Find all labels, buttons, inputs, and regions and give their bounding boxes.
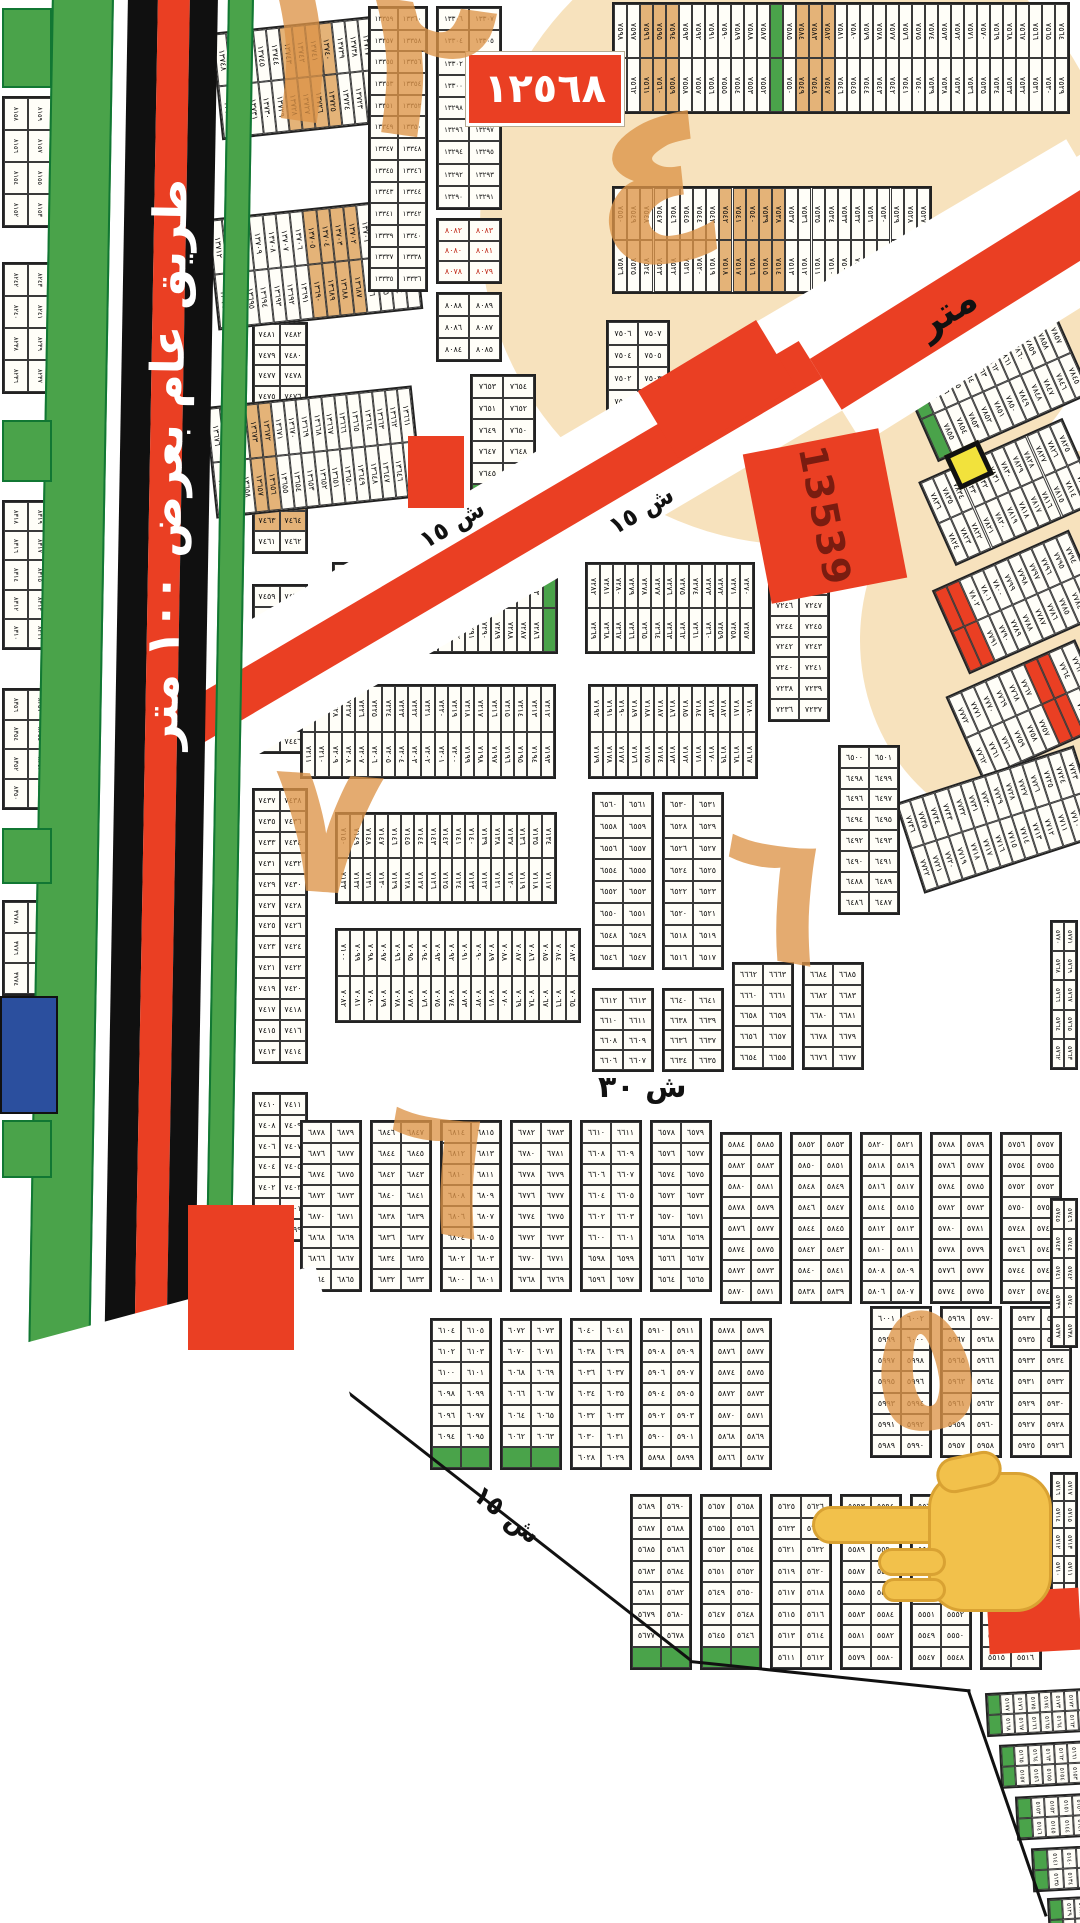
plot-cell: ٧٠٧٧ xyxy=(404,976,417,1022)
plot-cell: ٥٩٣٤ xyxy=(1041,1350,1070,1371)
plot-cell: ٦٦٠٦ xyxy=(594,1050,623,1070)
plot-cell: ٧٥٤٧ xyxy=(654,188,667,240)
plot-cell: ٦٥٥٢ xyxy=(594,881,623,903)
plot-cell: ٨٠٨٢ xyxy=(438,220,469,241)
plot-cell: ٦٥١٦ xyxy=(664,946,693,968)
plot-cell: ٨٣١٦ xyxy=(4,531,28,560)
plot-cell: ٦٦٠٧ xyxy=(611,1164,640,1185)
plot-cell: ٦٥٦٦ xyxy=(652,1248,681,1269)
plot-cell: ٧٥٥٤ xyxy=(731,58,744,112)
plot-cell: ٦٤٩٤ xyxy=(840,809,869,830)
plot-cell: ٥٨١٥ xyxy=(891,1197,920,1218)
plot-block: ٦٦٨٤٦٦٨٥٦٦٨٢٦٦٨٣٦٦٨٠٦٦٨١٦٦٧٨٦٦٧٩٦٦٧٦٦٦٧٧ xyxy=(802,962,864,1070)
plot-block: ٥٨٧٨٥٨٧٩٥٨٧٦٥٨٧٧٥٨٧٤٥٨٧٥٥٨٧٢٥٨٧٣٥٨٧٠٥٨٧١… xyxy=(710,1318,772,1470)
plot-block: ٧١٠٠٧٠٨٢٧٠٩٩٧٠٨١٧٠٩٨٧٠٨٠٧٠٩٧٧٠٧٩٧٠٩٦٧٠٧٨… xyxy=(335,928,581,1023)
plot-cell: ٧١٣٠ xyxy=(375,858,388,902)
plot-cell: ٥١٧٤ xyxy=(1039,1692,1053,1713)
plot-cell: ٧٤٠٦ xyxy=(254,1136,280,1157)
plot-block: ٨٠٨٨٨٠٨٩٨٠٨٦٨٠٨٧٨٠٨٤٨٠٨٥ xyxy=(436,292,502,362)
green-plot xyxy=(2,420,52,482)
plot-cell: ٥٧١٥ xyxy=(1064,1501,1076,1528)
plot-cell: ٧١٤٩ xyxy=(350,814,363,858)
plot-cell: ٦٥٥٨ xyxy=(594,816,623,838)
plot-block: ٥٧٧٠٥٧٧١٥٧٦٨٥٧٦٩٥٧٦٦٥٧٦٧٥٧٦٤٥٧٦٥٥٧٦٢٥٧٦٣ xyxy=(1050,920,1078,1070)
plot-cell: ٧٥٧٧ xyxy=(886,4,899,58)
plot-cell: ٥٦٧٨ xyxy=(661,1625,690,1647)
plot-cell: ٥٩٣٧ xyxy=(1012,1308,1041,1329)
plot-cell: ٧٥١٣ xyxy=(785,240,798,292)
plot-cell: ٦٠٢٨ xyxy=(572,1447,601,1468)
plot-cell: ٨٣٥٦ xyxy=(4,690,28,720)
plot-cell: ٥١٥٦ xyxy=(1029,1765,1043,1786)
plot-cell: ٥١٢٣ xyxy=(1063,1919,1077,1923)
plot-cell: ٧٥٩٤ xyxy=(666,4,679,58)
plot-cell: ٧٢١٤ xyxy=(514,686,527,732)
plot-cell: ٧٠٧١ xyxy=(485,976,498,1022)
plot-cell: ٧٤٢٢ xyxy=(280,957,306,978)
plot-cell: ٧١٨٦ xyxy=(667,686,680,732)
plot-block: ٥١٧٧٥١٦٨٥١٧٦٥١٦٧٥١٧٥٥١٦٦٥١٧٤٥١٦٥٥١٧٣٥١٦٤… xyxy=(985,1687,1080,1737)
plot-cell: ٥٨٧٥ xyxy=(751,1239,780,1260)
plot-cell: ٥٩٧٠ xyxy=(971,1308,1000,1329)
plot-cell: ١٣٣٣٨ xyxy=(398,247,426,269)
plot-cell: ٦٦٧٦ xyxy=(804,1047,833,1068)
plot-cell: ٥١٤١ xyxy=(1047,1849,1062,1870)
plot-cell: ٧٢٤٥ xyxy=(799,616,828,637)
plot-cell: ٧٠٩٣ xyxy=(431,930,444,976)
plot-cell: ٧٤٠٨ xyxy=(254,1115,280,1136)
plot-cell: ٥٨١٨ xyxy=(862,1155,891,1176)
plot-block: ٥٧٤٥٥٧٤٦٥٧٤٣٥٧٤٤٥٧٤١٥٧٤٢٥٧٣٩٥٧٤٠٥٧٣٧٥٧٣٨ xyxy=(1050,1198,1078,1348)
plot-cell: ٧٠٩٨ xyxy=(364,930,377,976)
plot-cell: ٦١٠٥ xyxy=(461,1320,490,1341)
plot-cell: ٦٤٩٠ xyxy=(840,851,869,872)
plot-cell: ٦٦١٣ xyxy=(623,990,652,1010)
red-plot xyxy=(188,1205,294,1350)
plot-cell: ٧٥١٦ xyxy=(746,240,759,292)
plot-cell: ٧١٢٥ xyxy=(440,858,453,902)
plot-cell: ٦٨١٢ xyxy=(442,1143,471,1164)
plot-cell: ٨٣٥٢ xyxy=(4,749,28,779)
plot-cell: ٥٧٥٥ xyxy=(1031,1155,1060,1176)
plot-cell: ٥٩٣٣ xyxy=(1012,1350,1041,1371)
plot-cell: ٧٢٠٧ xyxy=(355,732,368,778)
plot-cell: ١٣٣٤٤ xyxy=(398,182,426,204)
plot-cell: ٧٢١٩ xyxy=(448,686,461,732)
plot-cell: ٧١٧٥ xyxy=(641,732,654,778)
plot-cell: ١٣٣٥٥ xyxy=(370,51,398,73)
plot-cell: ٥٥٨٠ xyxy=(871,1647,900,1669)
plot-cell: ٧٥٣٨ xyxy=(772,188,785,240)
plot-cell: ٥١٥٠ xyxy=(1072,1795,1080,1816)
plot-cell: ٥٩٠٦ xyxy=(642,1362,671,1383)
plot-cell: ٥٧٤٨ xyxy=(1002,1218,1031,1239)
plot-cell: ٧٥٣٧ xyxy=(785,188,798,240)
plot-cell: ٧٠٨٥ xyxy=(539,930,552,976)
plot-cell: ٨٣٥٤ xyxy=(4,720,28,750)
plot-cell: ٦٧٨٣ xyxy=(541,1122,570,1143)
plot-cell: ٦٥٦١ xyxy=(623,794,652,816)
plot-cell: ٥٧٥٢ xyxy=(1002,1176,1031,1197)
plot-cell: ٥٧٥٦ xyxy=(1002,1134,1031,1155)
plot-cell: ٧١١٩ xyxy=(517,858,530,902)
plot-cell: ٧١٢٠ xyxy=(504,858,517,902)
plot-cell: ٥١٦٦ xyxy=(1027,1712,1041,1733)
plot-cell: ٥٨٥١ xyxy=(821,1155,850,1176)
plot-cell: ٦٦٣٤ xyxy=(664,1050,693,1070)
plot-cell: ٣٧٧٨ xyxy=(4,902,28,933)
plot-cell: ٥٨٤٩ xyxy=(821,1176,850,1197)
plot-cell: ٥٦٢٥ xyxy=(772,1496,801,1518)
plot-cell: ٧٥٢٩ xyxy=(891,188,904,240)
plot-cell: ٥٦٩٠ xyxy=(661,1496,690,1518)
plot-cell: ٧٥٤٢ xyxy=(886,58,899,112)
plot-cell: ٥٨٧٠ xyxy=(722,1281,751,1302)
plot-cell: ٧١٣٧ xyxy=(504,814,517,858)
plot-cell: ٦٨٧٥ xyxy=(331,1164,360,1185)
plot-cell: ٦٥٥٧ xyxy=(623,838,652,860)
plot-cell: ٥٨٧٧ xyxy=(751,1218,780,1239)
plot-cell: ٦٨٤٦ xyxy=(372,1122,401,1143)
plot-cell: ٦٤٨٨ xyxy=(840,872,869,893)
plot-cell: ٦٤٩٥ xyxy=(869,809,898,830)
plot-block: ٥١٢٩٥١٢٣٥١٢٨٥١٢٢٥١٢٧٥١٢١٥١٢٦٥١٢٠٥١٢٥٥١١٩ xyxy=(1047,1894,1080,1923)
plot-cell: ٦٥٧٣ xyxy=(681,1185,710,1206)
plot-cell: ٦٨٧٤ xyxy=(302,1164,331,1185)
plot-cell: ٥٨٧٧ xyxy=(741,1341,770,1362)
plot-cell: ٥٧٦٨ xyxy=(1052,951,1064,980)
plot-cell: ٦٧٧٢ xyxy=(512,1227,541,1248)
plot-cell: ٥٧٧٦ xyxy=(932,1260,961,1281)
plot-cell: ١٣٢٩٥ xyxy=(469,141,500,163)
plot-cell: ٧٥٦٩ xyxy=(990,4,1003,58)
plot-cell: ٧٤٣٨ xyxy=(280,790,306,811)
plot-cell: ٧٢٧٥ xyxy=(676,564,689,608)
plot-cell: ٦٥٧٢ xyxy=(652,1185,681,1206)
plot-cell: ٥١٧٧ xyxy=(1000,1694,1014,1715)
plot-cell: ٥٩٦٧ xyxy=(942,1329,971,1350)
plot-cell: ٧٢٦٦ xyxy=(625,608,638,652)
plot-cell: ٧٠٧٨ xyxy=(391,976,404,1022)
plot-cell: ٦٥٧٤ xyxy=(652,1164,681,1185)
plot-cell: ٧٢٦٩ xyxy=(587,608,600,652)
plot-cell: ٦٦٨٢ xyxy=(804,985,833,1006)
plot-cell: ٣٧٧٦ xyxy=(4,933,28,964)
plot-cell xyxy=(461,1447,490,1468)
plot-cell: ٦٠٩٧ xyxy=(461,1405,490,1426)
plot-cell: ١٣٣٥٢ xyxy=(398,95,426,117)
plot-block: ٦٦١٢٦٦١٣٦٦١٠٦٦١١٦٦٠٨٦٦٠٩٦٦٠٦٦٦٠٧ xyxy=(592,988,654,1072)
plot-cell: ٧٠٨٨ xyxy=(498,930,511,976)
plot-cell: ١٣٢٩١ xyxy=(469,186,500,208)
plot-cell: ٧٢٥٧ xyxy=(740,608,753,652)
plot-cell: ٧٢٠٣ xyxy=(408,732,421,778)
plot-cell: ٦٥٧١ xyxy=(681,1206,710,1227)
plot-cell: ٧٠٦٩ xyxy=(512,976,525,1022)
plot-cell: ٧٥٣٥ xyxy=(812,188,825,240)
plot-cell: ٥٦٢١ xyxy=(772,1539,801,1561)
plot-cell: ٥١٦٥ xyxy=(1040,1712,1054,1733)
plot-cell: ٨٠٨٠ xyxy=(438,241,469,262)
plot-cell: ٦٦٧٩ xyxy=(833,1026,862,1047)
plot-cell: ٦٠٣٥ xyxy=(601,1383,630,1404)
plot-cell: ٦٥٥٠ xyxy=(594,903,623,925)
plot-cell: ٦٥٦٧ xyxy=(681,1248,710,1269)
plot-cell: ٥٧١٣ xyxy=(1064,1528,1076,1555)
plot-cell: ٥٧٨١ xyxy=(961,1218,990,1239)
plot-cell: ٥١٥١ xyxy=(1058,1796,1073,1817)
plot-cell: ٦٠٦٤ xyxy=(502,1405,531,1426)
plot-cell: ٧٥٤٨ xyxy=(640,188,653,240)
plot-cell: ٧١١٧ xyxy=(542,858,555,902)
plot-block: ٥٦٥٧٥٦٥٨٥٦٥٥٥٦٥٦٥٦٥٣٥٦٥٤٥٦٥١٥٦٥٢٥٦٤٩٥٦٥٠… xyxy=(700,1494,762,1670)
plot-cell: ٧١٤٣ xyxy=(427,814,440,858)
plot-cell: ٧٢٠٨ xyxy=(342,732,355,778)
plot-cell: ٧٥٤٠ xyxy=(912,58,925,112)
plot-cell: ٥٦٤٥ xyxy=(702,1625,731,1647)
plot-cell: ٥٧٤٥ xyxy=(1052,1200,1064,1229)
plot-cell: ٦٨٣٧ xyxy=(401,1227,430,1248)
plot-cell: ٧٥١٢ xyxy=(798,240,811,292)
plot-cell: ٥٧٣٨ xyxy=(1064,1317,1076,1346)
plot-cell: ٥٩٩٥ xyxy=(872,1371,901,1392)
pointing-finger-icon xyxy=(812,1452,1062,1622)
plot-cell: ٨٢٤٠ xyxy=(4,296,28,328)
plot-cell: ٦٤٨٦ xyxy=(840,892,869,913)
plot-cell: ٧٤٣٠ xyxy=(280,874,306,895)
plot-cell: ٥١٦٤ xyxy=(1027,1745,1041,1766)
plot-cell: ٧٥٣٣ xyxy=(1003,58,1016,112)
plot-cell: ٥٧٤٣ xyxy=(1052,1229,1064,1258)
plot-cell: ٧٢٦٢ xyxy=(676,608,689,652)
plot-cell: ٧٥٢٩ xyxy=(1055,58,1068,112)
plot-cell: ٦٧٧٥ xyxy=(541,1206,570,1227)
plot-cell: ٧٠٧٦ xyxy=(418,976,431,1022)
plot-cell: ٥٧٤١ xyxy=(1052,1258,1064,1287)
plot-cell: ٦٥١٩ xyxy=(693,925,722,947)
plot-cell: ٧٥٧٥ xyxy=(912,4,925,58)
plot-cell: ٥٩٣٢ xyxy=(1041,1371,1070,1392)
plot-cell: ٥١٢٢ xyxy=(1075,1918,1080,1923)
plot-cell: ٦٨٧٨ xyxy=(302,1122,331,1143)
plot-cell: ٥٧٧١ xyxy=(1064,922,1076,951)
plot-cell xyxy=(770,58,783,112)
plot-cell: ٦٦٠٩ xyxy=(611,1143,640,1164)
plot-cell: ٥٨٨٠ xyxy=(722,1176,751,1197)
plot-cell: ٥٦٧٩ xyxy=(632,1604,661,1626)
plot-cell: ٧٤٣٥ xyxy=(254,811,280,832)
plot-cell: ٥١٥٥ xyxy=(1042,1764,1056,1785)
plot-cell: ٥١٦٣ xyxy=(1065,1710,1079,1731)
plot-cell: ٧٥٤٠ xyxy=(746,188,759,240)
plot-cell: ٧١٢٦ xyxy=(427,858,440,902)
plot-cell: ٧٥٩٠ xyxy=(718,4,731,58)
plot-cell: ٧١٦٩ xyxy=(718,732,731,778)
plot-cell: ٥٦٤٦ xyxy=(731,1625,760,1647)
plot-cell: ٦٥٩٦ xyxy=(582,1269,611,1290)
plot-cell: ٧٢٨٧ xyxy=(517,608,530,652)
plot-cell: ٧٥٤٤ xyxy=(693,188,706,240)
plot-cell: ٥٦١٣ xyxy=(772,1625,801,1647)
plot-cell: ٥٩٦٦ xyxy=(971,1350,1000,1371)
plot-cell: ٦٥١٨ xyxy=(664,925,693,947)
plot-cell: ٦٥٢٨ xyxy=(664,816,693,838)
plot-cell: ٦٨٣٥ xyxy=(401,1248,430,1269)
plot-cell: ١٣٣٣٩ xyxy=(370,225,398,247)
plot-cell: ٧٦٤٩ xyxy=(472,419,503,441)
plot-cell: ٧٦٤٧ xyxy=(472,441,503,463)
plot-cell: ٥٨٤٣ xyxy=(821,1239,850,1260)
plot-cell: ٧١٢٩ xyxy=(388,858,401,902)
plot-cell: ٦٠٣٢ xyxy=(572,1405,601,1426)
plot-cell: ٥٩٢٩ xyxy=(1012,1393,1041,1414)
plot-cell: ٧٥٤٣ xyxy=(706,188,719,240)
plot-cell: ٨٣١٨ xyxy=(4,502,28,531)
plot-cell: ٧٤٢٣ xyxy=(254,936,280,957)
plot-cell: ٧٥٢٤ xyxy=(640,240,653,292)
plot-cell: ٧٢١٨ xyxy=(461,686,474,732)
plot-cell: ٧٥٠٥ xyxy=(638,345,668,368)
plot-cell: ٦٠٧٢ xyxy=(502,1320,531,1341)
plot-cell: ٧١٩٣ xyxy=(541,732,554,778)
plot-cell: ٧٥٥٦ xyxy=(705,58,718,112)
plot-cell: ٧٥٨٧ xyxy=(757,4,770,58)
plot-cell: ٧٢٠٥ xyxy=(382,732,395,778)
plot-cell: ٧١٢٣ xyxy=(465,858,478,902)
plot-cell: ٥٩١١ xyxy=(671,1320,700,1341)
green-plot xyxy=(2,1120,52,1178)
plot-cell: ٦٥٦٤ xyxy=(652,1269,681,1290)
plot-cell: ٧٥٣٢ xyxy=(1016,58,1029,112)
plot-cell: ٦٥١٧ xyxy=(693,946,722,968)
plot-cell: ٦٨٣٦ xyxy=(372,1227,401,1248)
plot-cell: ٧١٣٩ xyxy=(478,814,491,858)
plot-cell: ٧٥٥٥ xyxy=(718,58,731,112)
plot-cell: ٥٩٩٨ xyxy=(901,1350,930,1371)
plot-cell: ٧٢٤٤ xyxy=(770,616,799,637)
plot-cell: ٦٠٣٩ xyxy=(601,1341,630,1362)
plot-cell: ٧١٧٨ xyxy=(603,732,616,778)
plot-cell: ٧٥٧٩ xyxy=(860,4,873,58)
plot-cell: ١٣٣٥٩ xyxy=(370,8,398,30)
plot-cell: ٧٠٩٠ xyxy=(471,930,484,976)
plot-cell: ١٣٣٥١ xyxy=(370,95,398,117)
plot-cell: ٥١٤٠ xyxy=(1062,1848,1077,1869)
plot-cell: ٧٠٨١ xyxy=(350,976,363,1022)
plot-cell: ٥٨١٠ xyxy=(862,1239,891,1260)
plot-cell: ٦٥٢٦ xyxy=(664,838,693,860)
palm xyxy=(928,1472,1052,1612)
plot-cell: ٦٥٧٠ xyxy=(652,1206,681,1227)
plot-cell: ٦٦٠١ xyxy=(611,1227,640,1248)
plot-cell: ٨٠٨٣ xyxy=(469,220,500,241)
plot-cell: ٦٨٧٠ xyxy=(302,1206,331,1227)
plot-cell: ٧٥٤١ xyxy=(899,58,912,112)
plot-cell: ٧١٨٩ xyxy=(628,686,641,732)
plot-cell: ٧٢٧٢ xyxy=(715,564,728,608)
plot-cell: ٦٥٤٩ xyxy=(623,925,652,947)
plot-cell: ٥١٢٩ xyxy=(1062,1899,1076,1920)
plot-cell: ٧٢٠٩ xyxy=(329,732,342,778)
plot-cell: ٥٧٦٧ xyxy=(1064,980,1076,1009)
plot-cell: ٦٠٤٠ xyxy=(572,1320,601,1341)
plot-cell: ٦٦٠٠ xyxy=(582,1227,611,1248)
plot-cell: ٧٥٤٢ xyxy=(719,188,732,240)
plot-cell: ٥٨٧٣ xyxy=(741,1383,770,1404)
plot-cell: ٧٤٨١ xyxy=(254,324,280,345)
plot-cell: ٦٥٩٩ xyxy=(611,1248,640,1269)
plot-cell: ٨٠٨٨ xyxy=(438,294,469,316)
plot-cell: ١٣٣٣٦ xyxy=(398,268,426,290)
plot-cell: ٧١٩٤ xyxy=(527,732,540,778)
plot-cell: ٧٥٣٨ xyxy=(938,58,951,112)
plot-cell: ٧١٢٤ xyxy=(452,858,465,902)
plot-cell: ١٣٣٥٧ xyxy=(370,30,398,52)
plot-cell: ٦٨٤٣ xyxy=(401,1164,430,1185)
plot-cell: ٧٤١٩ xyxy=(254,978,280,999)
plot-cell: ٥٨٧٢ xyxy=(722,1260,751,1281)
plot-cell xyxy=(1049,1899,1063,1920)
plot-cell xyxy=(987,1694,1001,1715)
plot-cell: ٥٩٩١ xyxy=(872,1414,901,1435)
plot-cell: ٧٥٤٣ xyxy=(873,58,886,112)
plot-cell: ١٣٢٩٣ xyxy=(469,164,500,186)
plot-cell: ٧٠٨٢ xyxy=(337,976,350,1022)
plot-cell: ٥٨٧٠ xyxy=(712,1405,741,1426)
plot-cell: ٨٣١٢ xyxy=(4,590,28,619)
plot-cell: ٧٥٦٦ xyxy=(1029,4,1042,58)
plot-cell: ٥٩٠١ xyxy=(671,1426,700,1447)
plot-block: ٥٨٥٢٥٨٥٣٥٨٥٠٥٨٥١٥٨٤٨٥٨٤٩٥٨٤٦٥٨٤٧٥٨٤٤٥٨٤٥… xyxy=(790,1132,852,1304)
plot-cell: ٥٧٨٨ xyxy=(932,1134,961,1155)
plot-cell: ٥٧٥٠ xyxy=(1002,1197,1031,1218)
plot-cell: ٧٥٤٩ xyxy=(627,188,640,240)
plot-cell: ٧٥٨٤ xyxy=(796,4,809,58)
plot-cell: ٦٦٦٢ xyxy=(734,964,763,985)
plot-cell: ٧٢٦٤ xyxy=(651,608,664,652)
plot-cell: ٦٥٤٨ xyxy=(594,925,623,947)
plot-cell: ٥٦٥٠ xyxy=(731,1582,760,1604)
plot-cell: ٦٨٠٧ xyxy=(471,1206,500,1227)
plot-cell: ٦٥٧٧ xyxy=(681,1143,710,1164)
plot-cell: ٥٧٥٣ xyxy=(1031,1176,1060,1197)
plot-cell: ٥٧٤٤ xyxy=(1002,1260,1031,1281)
plot-block: ٦٧٨٢٦٧٨٣٦٧٨٠٦٧٨١٦٧٧٨٦٧٧٩٦٧٧٦٦٧٧٧٦٧٧٤٦٧٧٥… xyxy=(510,1120,572,1292)
plot-cell: ٦٦٠٤ xyxy=(582,1185,611,1206)
plot-cell: ٨٣١٤ xyxy=(4,560,28,589)
plot-cell: ٦١٠٤ xyxy=(432,1320,461,1341)
plot-cell: ٧٤٦٢ xyxy=(280,531,306,552)
plot-cell: ٥٦٨٧ xyxy=(632,1518,661,1540)
plot-block: ٥٧٨٨٥٧٨٩٥٧٨٦٥٧٨٧٥٧٨٤٥٧٨٥٥٧٨٢٥٧٨٣٥٧٨٠٥٧٨١… xyxy=(930,1132,992,1304)
plot-cell: ٧١٧١ xyxy=(692,732,705,778)
plot-cell: ٧١٧٧ xyxy=(616,732,629,778)
plot-cell: ٥٨٤٨ xyxy=(792,1176,821,1197)
plot-cell: ٧٠٩٦ xyxy=(391,930,404,976)
plot-cell: ٦٤٩١ xyxy=(869,851,898,872)
plot-cell: ٦٦٣٦ xyxy=(664,1030,693,1050)
plot-cell: ٦٧٧٣ xyxy=(541,1227,570,1248)
plot-cell: ٧٥٥٠ xyxy=(614,188,627,240)
plot-cell: ٧٥٤٩ xyxy=(796,58,809,112)
plot-cell: ٧٥٢١ xyxy=(680,240,693,292)
plot-cell: ٥٨٠٩ xyxy=(891,1260,920,1281)
plot-cell: ٦٦٠٧ xyxy=(623,1050,652,1070)
plot-cell: ٧١٦٧ xyxy=(743,732,756,778)
plot-block: ٧٥٩٨٧٥٦٣٧٥٩٧٧٥٦٢٧٥٩٦٧٥٦١٧٥٩٥٧٥٦٠٧٥٩٤٧٥٥٩… xyxy=(612,2,1070,114)
plot-cell: ٦٥٢٢ xyxy=(664,881,693,903)
plot-cell: ٥٩٠٨ xyxy=(642,1341,671,1362)
